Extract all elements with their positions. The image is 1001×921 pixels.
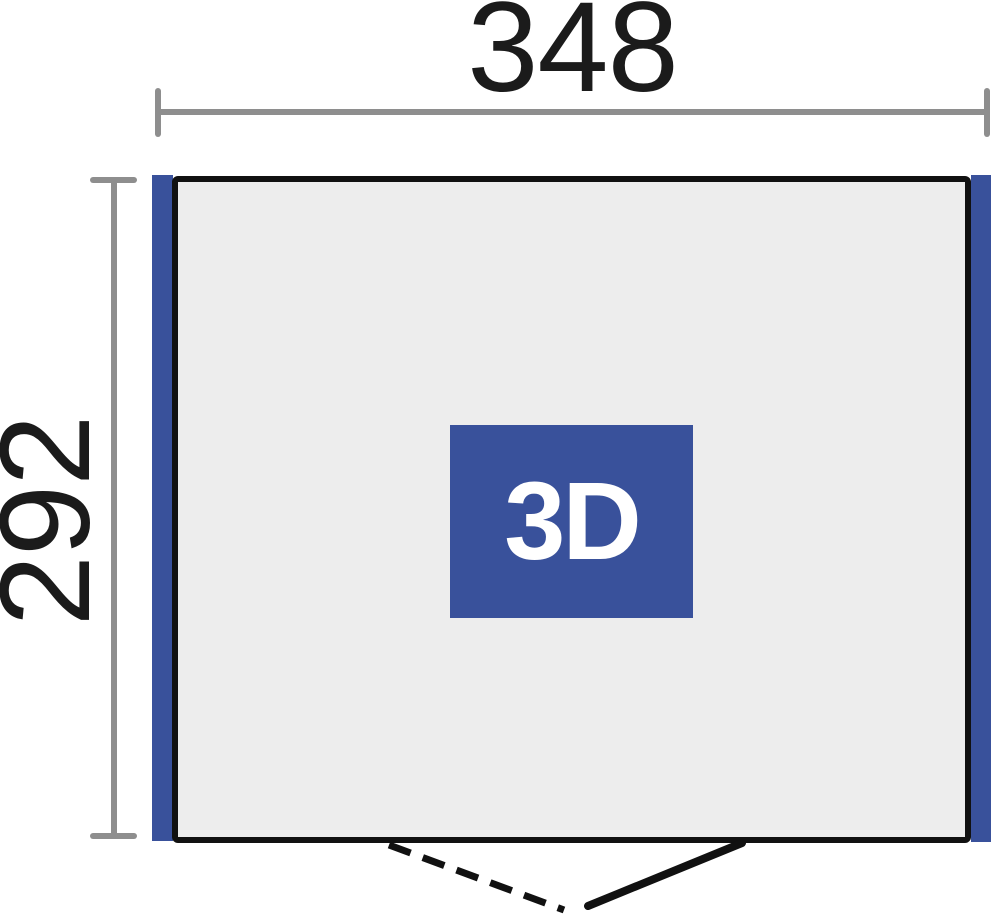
door-leaf-dashed-line [389, 845, 564, 910]
door-leaf-solid-line [588, 843, 742, 906]
3d-view-badge[interactable]: 3D [450, 425, 693, 618]
width-dimension-tick-right [984, 88, 990, 137]
width-dimension-label: 348 [158, 0, 987, 112]
width-dimension-line [158, 109, 987, 115]
right-wall-panel [971, 175, 991, 842]
height-dimension-tick-bottom [90, 833, 137, 839]
width-dimension-tick-left [155, 88, 161, 137]
shed-plan-diagram: 348 292 3D [0, 0, 1001, 921]
left-wall-panel [152, 175, 173, 841]
height-dimension-label: 292 [0, 321, 111, 721]
height-dimension-line [111, 180, 117, 836]
height-dimension-tick-top [90, 177, 137, 183]
3d-badge-label: 3D [504, 467, 639, 577]
